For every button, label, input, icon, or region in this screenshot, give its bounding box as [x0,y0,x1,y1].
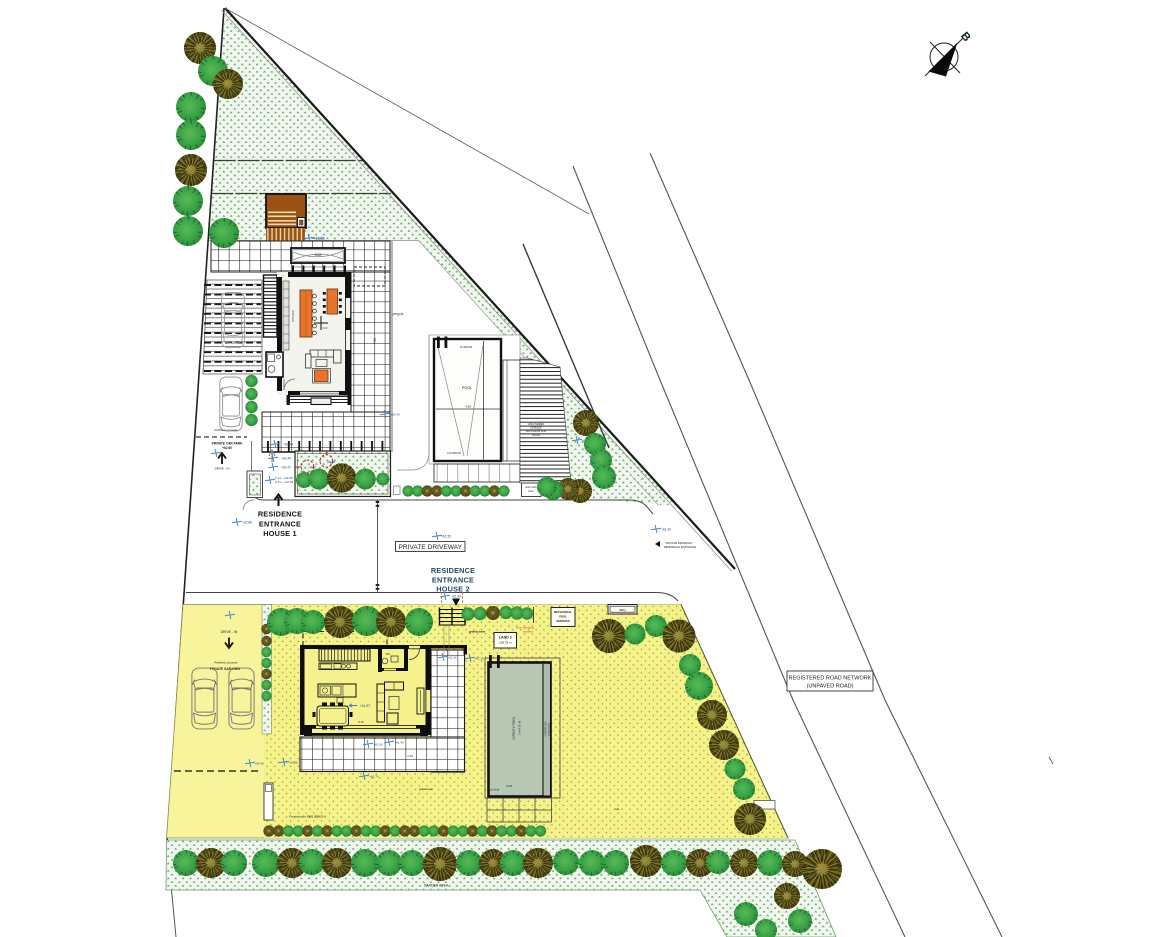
svg-text:REGISTERED ROAD NETWORK: REGISTERED ROAD NETWORK [789,676,872,682]
svg-text:9.30: 9.30 [358,720,364,724]
svg-text:+60.46: +60.46 [254,762,264,766]
svg-text:3.62: 3.62 [315,253,322,257]
svg-text:DRIVE - IN: DRIVE - IN [215,467,230,471]
svg-text:4.50: 4.50 [465,405,471,409]
svg-text:+62.36: +62.36 [447,656,457,660]
svg-text:3.30: 3.30 [407,754,413,758]
svg-text:+62.88: +62.88 [313,237,324,241]
svg-text:3.00: 3.00 [506,784,512,788]
svg-text:H=60CM: H=60CM [460,345,472,349]
svg-text:+61.56: +61.56 [373,743,383,747]
svg-text:SERVICES: SERVICES [556,619,570,623]
svg-text:7.50: 7.50 [373,338,377,344]
svg-text:+62.40: +62.40 [390,413,400,417]
svg-text:OVERFLOW: OVERFLOW [544,721,548,736]
svg-text:MECHANICAL: MECHANICAL [554,610,572,614]
svg-text:grandstone: grandstone [419,787,433,791]
svg-text:Pebbled concrete: Pebbled concrete [214,428,238,432]
svg-text:+62.04: +62.04 [283,443,293,447]
svg-text:pool deck: pool deck [489,789,500,792]
svg-text:GARDEN AREA: GARDEN AREA [424,884,449,888]
svg-text:INFINITY POOL: INFINITY POOL [512,716,516,739]
svg-text:RESIDENCE: RESIDENCE [431,566,475,575]
svg-text:RESIDENCE: RESIDENCE [258,510,302,519]
svg-text:+62.47: +62.47 [281,466,291,470]
svg-text:Pebbled concrete: Pebbled concrete [214,661,238,665]
svg-text:0.00: 0.00 [323,327,328,330]
svg-text:+62.16: +62.16 [474,657,484,661]
svg-text:(UNPAVED ROAD): (UNPAVED ROAD) [807,684,854,690]
svg-text:H=150CM: H=150CM [447,451,461,455]
svg-text:S.S.L. +62.38: S.S.L. +62.38 [275,480,294,484]
svg-text:TRACK: TRACK [532,433,541,437]
svg-text:ENTRANCE: ENTRANCE [432,576,474,585]
svg-text:pergola: pergola [393,312,404,316]
svg-text:Provision for BBQ BENCH: Provision for BBQ BENCH [289,815,324,819]
svg-text:grandstone: grandstone [469,630,486,634]
svg-text:WC: WC [386,652,391,656]
svg-text:pool mech: pool mech [525,485,538,489]
svg-text:5.4×4.50 M: 5.4×4.50 M [518,720,522,735]
svg-text:RESIDENCE ENTRANCE: RESIDENCE ENTRANCE [664,545,697,549]
svg-text:+61.76: +61.76 [369,775,379,779]
svg-text:+62.44: +62.44 [281,457,291,461]
svg-text:+62.88: +62.88 [242,521,252,525]
svg-text:ENTRANCE: ENTRANCE [259,520,301,529]
svg-text:BBQ: BBQ [619,608,626,612]
svg-text:UNCOVERED: UNCOVERED [528,422,545,426]
svg-text:+61.46: +61.46 [394,741,404,745]
svg-text:+62.60: +62.60 [327,460,336,464]
svg-text:228.78 m: 228.78 m [499,641,512,645]
svg-text:DRIVE - IN: DRIVE - IN [221,630,238,634]
svg-text:POOL: POOL [462,386,472,390]
svg-text:POOL: POOL [559,615,567,619]
svg-text:HOUSE 1: HOUSE 1 [263,529,296,538]
svg-text:PROVISION FOR: PROVISION FOR [526,429,547,433]
svg-text:+61.30: +61.30 [661,528,671,532]
svg-text:room: room [528,489,534,493]
svg-text:+61.55: +61.55 [441,535,451,539]
svg-text:KITCHEN: KITCHEN [291,310,295,322]
svg-text:+61.87: +61.87 [360,704,371,708]
svg-text:+60.26: +60.26 [288,761,298,765]
svg-text:shower: shower [523,630,533,634]
svg-text:LEVELED: LEVELED [530,426,542,430]
svg-text:LAND 2: LAND 2 [499,636,512,640]
svg-text:FOR POOL: FOR POOL [547,722,551,736]
svg-text:+61.84: +61.84 [451,595,461,599]
svg-text:+62.60: +62.60 [222,446,232,450]
svg-text:PRIVATE DRIVEWAY: PRIVATE DRIVEWAY [399,544,463,551]
svg-text:oak: oak [615,807,620,811]
svg-text:+62.60: +62.60 [308,466,316,469]
svg-text:HOUSE 2: HOUSE 2 [436,585,469,594]
svg-text:PRIVATE CAR PARK: PRIVATE CAR PARK [212,442,244,446]
